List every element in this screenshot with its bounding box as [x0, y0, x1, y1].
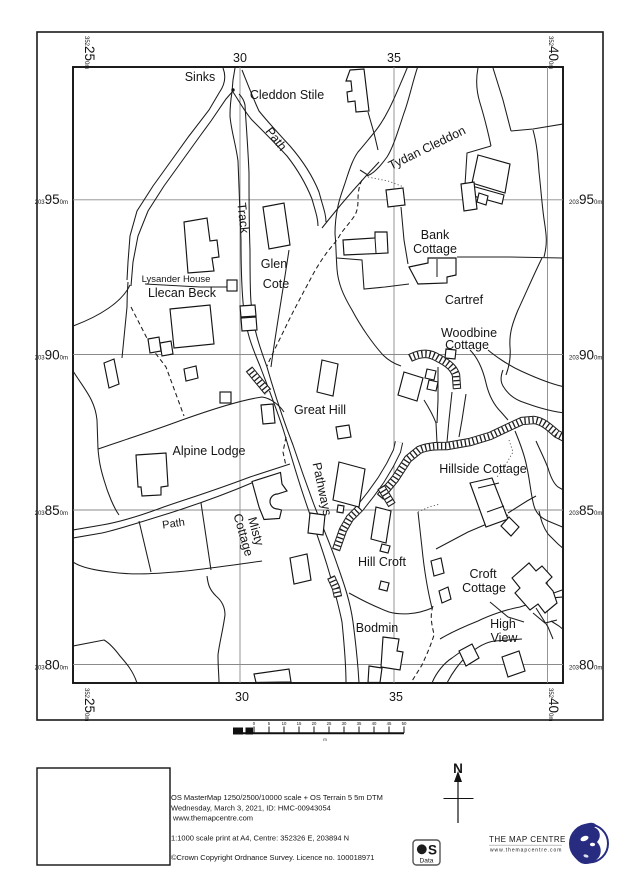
- svg-text:30: 30: [342, 721, 347, 726]
- svg-text:Llecan Beck: Llecan Beck: [148, 286, 217, 300]
- svg-text:Cottage: Cottage: [445, 338, 489, 352]
- svg-text:Hillside Cottage: Hillside Cottage: [439, 462, 527, 476]
- svg-text:35: 35: [389, 690, 403, 704]
- svg-text:35: 35: [357, 721, 362, 726]
- svg-text:High: High: [490, 617, 516, 631]
- svg-text:10: 10: [282, 721, 287, 726]
- svg-text:35: 35: [387, 51, 401, 65]
- svg-text:Cleddon Stile: Cleddon Stile: [250, 88, 324, 102]
- svg-text:Bodmin: Bodmin: [356, 621, 398, 635]
- svg-text:THE MAP CENTRE: THE MAP CENTRE: [489, 835, 566, 844]
- svg-text:20: 20: [312, 721, 317, 726]
- svg-text:30: 30: [233, 51, 247, 65]
- svg-text:Cote: Cote: [263, 277, 289, 291]
- svg-text:Bank: Bank: [421, 228, 450, 242]
- svg-text:Data: Data: [420, 858, 434, 865]
- svg-text:Wednesday, March 3, 2021, ID:: Wednesday, March 3, 2021, ID: HMC-009430…: [171, 804, 331, 813]
- svg-text:View: View: [491, 631, 519, 645]
- svg-text:Great Hill: Great Hill: [294, 403, 346, 417]
- svg-text:Cottage: Cottage: [462, 581, 506, 595]
- svg-text:25: 25: [327, 721, 332, 726]
- svg-text:www.themapcentre.com: www.themapcentre.com: [490, 848, 562, 854]
- svg-text:Glen: Glen: [261, 257, 287, 271]
- svg-text:1:1000 scale print at A4, Cent: 1:1000 scale print at A4, Centre: 352326…: [171, 834, 349, 843]
- svg-text:m: m: [323, 737, 327, 742]
- svg-text:©Crown Copyright Ordnance Surv: ©Crown Copyright Ordnance Survey. Licenc…: [171, 853, 374, 862]
- svg-text:www.themapcentre.com: www.themapcentre.com: [172, 814, 253, 823]
- svg-text:Sinks: Sinks: [185, 70, 216, 84]
- svg-text:Croft: Croft: [469, 567, 497, 581]
- svg-text:Hill Croft: Hill Croft: [358, 555, 406, 569]
- svg-text:Alpine Lodge: Alpine Lodge: [173, 444, 246, 458]
- svg-text:OS MasterMap 1250/2500/10000 s: OS MasterMap 1250/2500/10000 scale + OS …: [171, 793, 383, 802]
- svg-text:Cartref: Cartref: [445, 293, 484, 307]
- svg-text:Lysander House: Lysander House: [142, 274, 211, 285]
- svg-text:Cottage: Cottage: [413, 242, 457, 256]
- svg-text:15: 15: [297, 721, 302, 726]
- svg-text:50: 50: [402, 721, 407, 726]
- svg-text:30: 30: [235, 690, 249, 704]
- svg-text:45: 45: [387, 721, 392, 726]
- svg-text:S: S: [428, 843, 437, 858]
- svg-text:40: 40: [372, 721, 377, 726]
